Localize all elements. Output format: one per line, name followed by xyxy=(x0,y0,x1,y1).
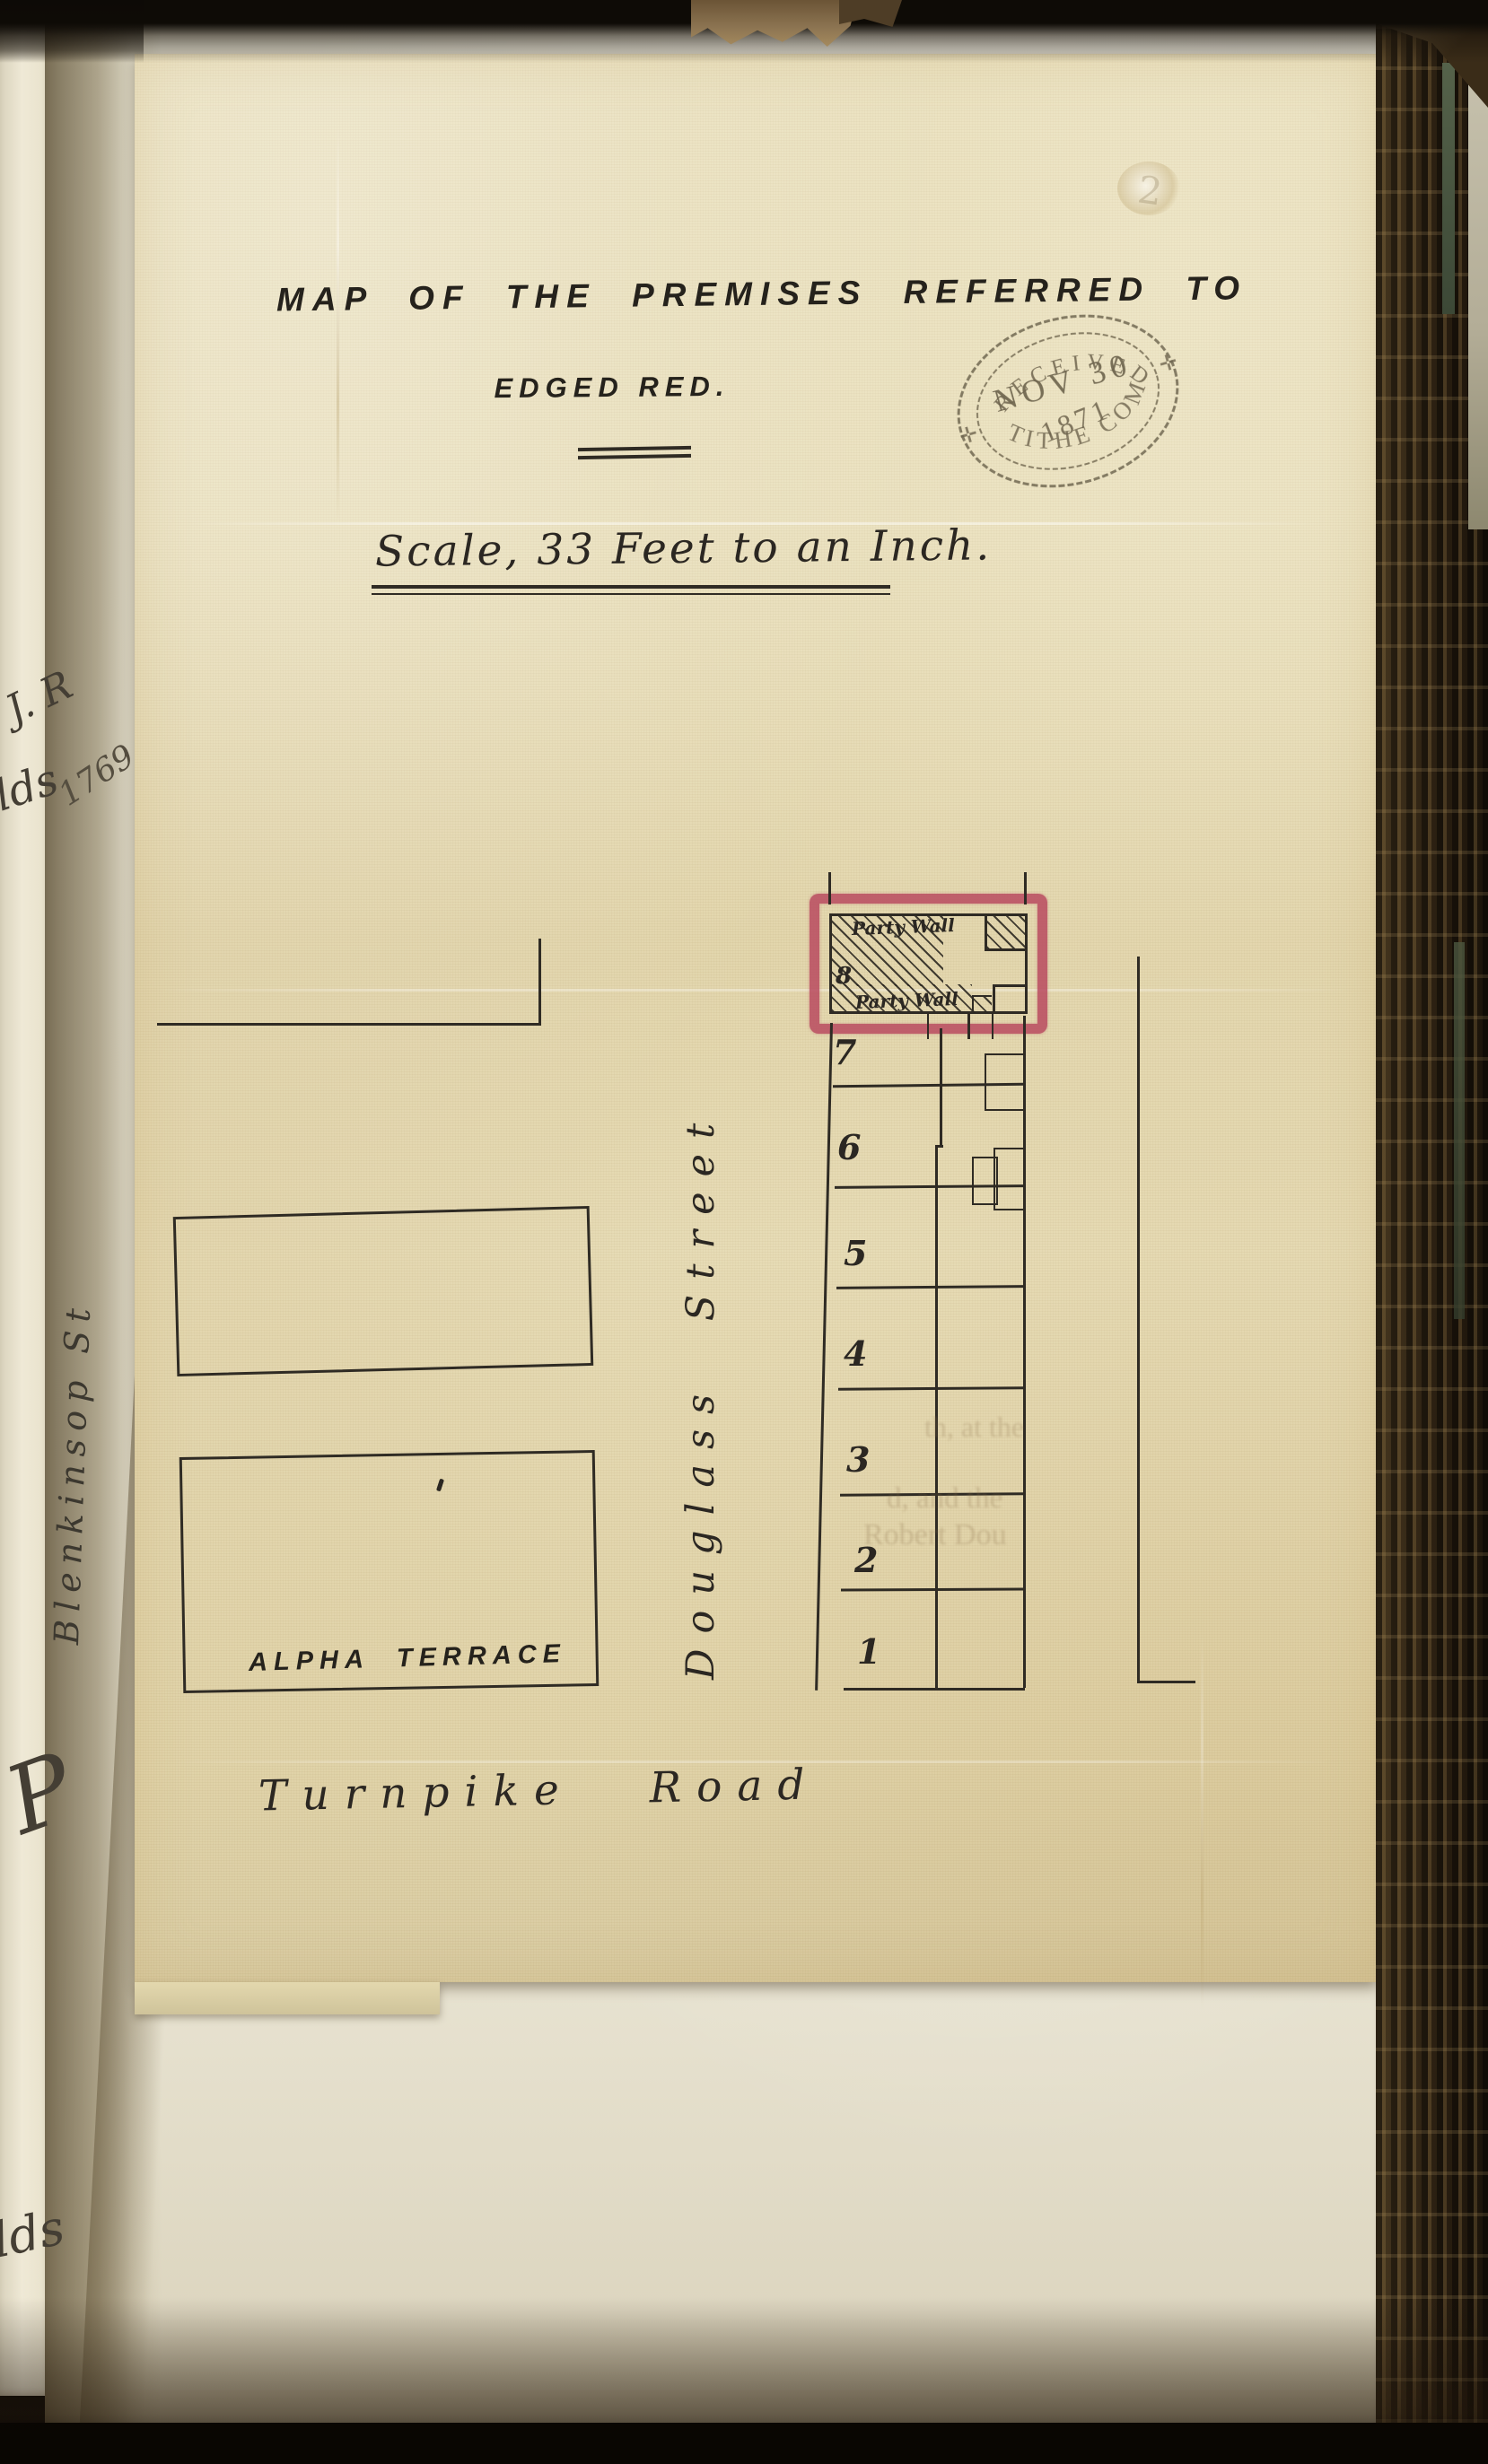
red-plot-number: 8 xyxy=(836,963,852,990)
bleed-through-line: Robert Dou xyxy=(863,1518,1007,1552)
sheet-bottom-flap xyxy=(135,1982,440,2014)
premises-building-outline: Party Wall Party Wall 8 xyxy=(829,913,1028,1014)
rear-yard-outline xyxy=(993,984,1028,1014)
map-subtitle: EDGED RED. xyxy=(468,371,756,406)
plot-divider-5-4 xyxy=(836,1285,1024,1289)
bleed-through-line: d, and the xyxy=(887,1482,1002,1516)
outbuilding-a xyxy=(985,1053,1026,1111)
lane-boundary-foot xyxy=(1140,1681,1195,1683)
outbuilding-c xyxy=(993,1148,1025,1210)
map-title: MAP OF THE PREMISES REFERRED TO xyxy=(276,272,1084,319)
paper-crease xyxy=(153,989,1355,992)
scanned-book-page: J. R lds 1769 Blenkinsop St P lds 2 MAP … xyxy=(0,0,1488,2464)
plot-number-3: 3 xyxy=(846,1439,870,1480)
plots-left-boundary xyxy=(815,1023,833,1691)
paper-crease xyxy=(1201,1633,1204,2010)
plot-divider-2-1 xyxy=(841,1587,1024,1591)
block-corner-vertical xyxy=(538,939,541,1026)
map-sheet: 2 MAP OF THE PREMISES REFERRED TO EDGED … xyxy=(135,54,1376,1982)
party-wall-label-bottom: Party Wall xyxy=(855,988,958,1013)
small-yard-below-premises xyxy=(927,1014,993,1039)
plots-bottom-boundary xyxy=(844,1688,1025,1691)
boundary-stub-right xyxy=(1024,872,1027,904)
small-yard-divider xyxy=(967,1014,970,1039)
outbuilding-hatch-bottom xyxy=(972,995,992,1013)
road-label-turnpike: Turnpike Road xyxy=(258,1760,820,1821)
street-label-douglass: Douglass Street xyxy=(678,971,723,1680)
scale-underline-thin xyxy=(372,593,890,595)
outbuilding-hatch-top-right xyxy=(985,916,1028,951)
plot-number-4: 4 xyxy=(844,1333,867,1374)
subtitle-rule-top xyxy=(578,446,691,451)
plot-number-1: 1 xyxy=(857,1631,880,1672)
subtitle-rule-bottom xyxy=(578,454,691,459)
lane-boundary-vertical xyxy=(1137,957,1140,1683)
party-wall-label-top: Party Wall xyxy=(852,914,955,939)
plot-number-5: 5 xyxy=(844,1233,867,1273)
tithe-commission-stamp: RECEIVED TITHE COM NOV 30 1871 ✛ ✛ xyxy=(925,276,1211,526)
scale-underline-thick xyxy=(372,585,890,589)
building-block-upper xyxy=(173,1206,594,1376)
spine-green-strip-lower xyxy=(1454,942,1465,1319)
plot-divider-4-3 xyxy=(838,1386,1024,1390)
block-corner-horizontal xyxy=(157,1023,541,1026)
plot-number-7: 7 xyxy=(833,1032,856,1072)
stamp-left-mark: ✛ xyxy=(957,423,980,450)
bottom-edge-band xyxy=(0,2423,1488,2464)
bleed-through-line: th, at the xyxy=(924,1411,1024,1444)
paper-crease xyxy=(337,126,339,520)
plots-middle-divider-upper xyxy=(940,1028,942,1147)
plot-number-6: 6 xyxy=(837,1127,861,1167)
stamp-right-mark: ✛ xyxy=(1157,350,1180,378)
boundary-stub-left xyxy=(828,872,831,904)
spine-green-strip xyxy=(1442,63,1455,314)
scale-note: Scale, 33 Feet to an Inch. xyxy=(375,520,993,576)
top-left-shadow xyxy=(0,0,144,63)
